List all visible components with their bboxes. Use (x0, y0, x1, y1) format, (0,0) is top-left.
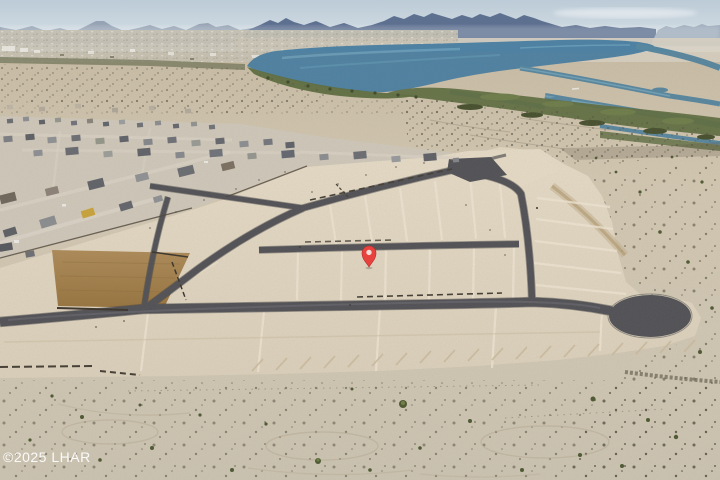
watermark-text: ©2025 LHAR (3, 449, 91, 465)
aerial-photo: ©2025 LHAR (0, 0, 720, 480)
pin-hole (366, 250, 371, 255)
cloud-wisp (553, 8, 697, 18)
photo-grain (0, 52, 720, 480)
